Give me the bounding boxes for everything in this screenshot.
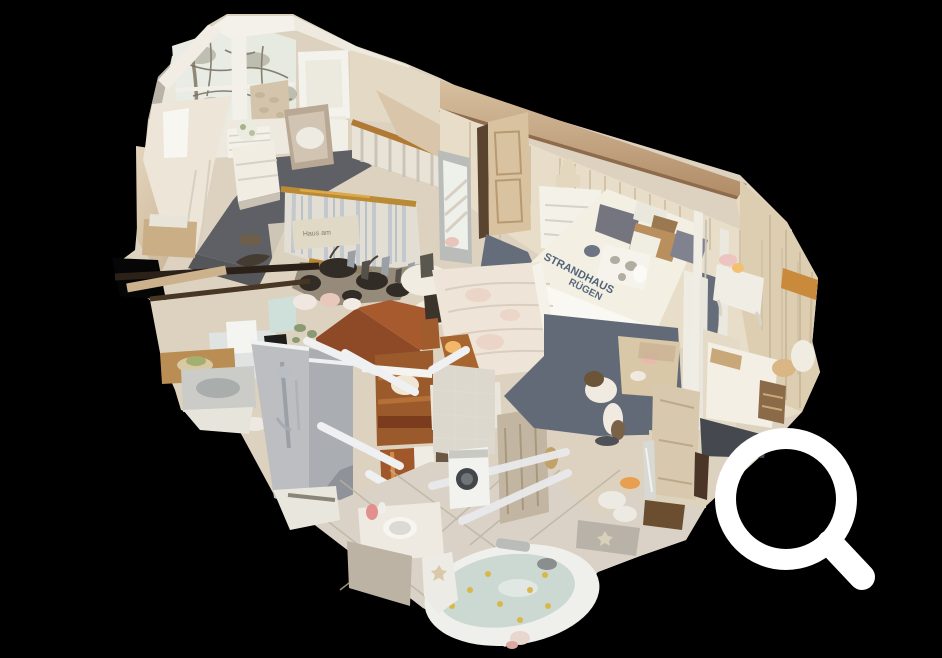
svg-text:Haus am: Haus am: [303, 230, 332, 238]
